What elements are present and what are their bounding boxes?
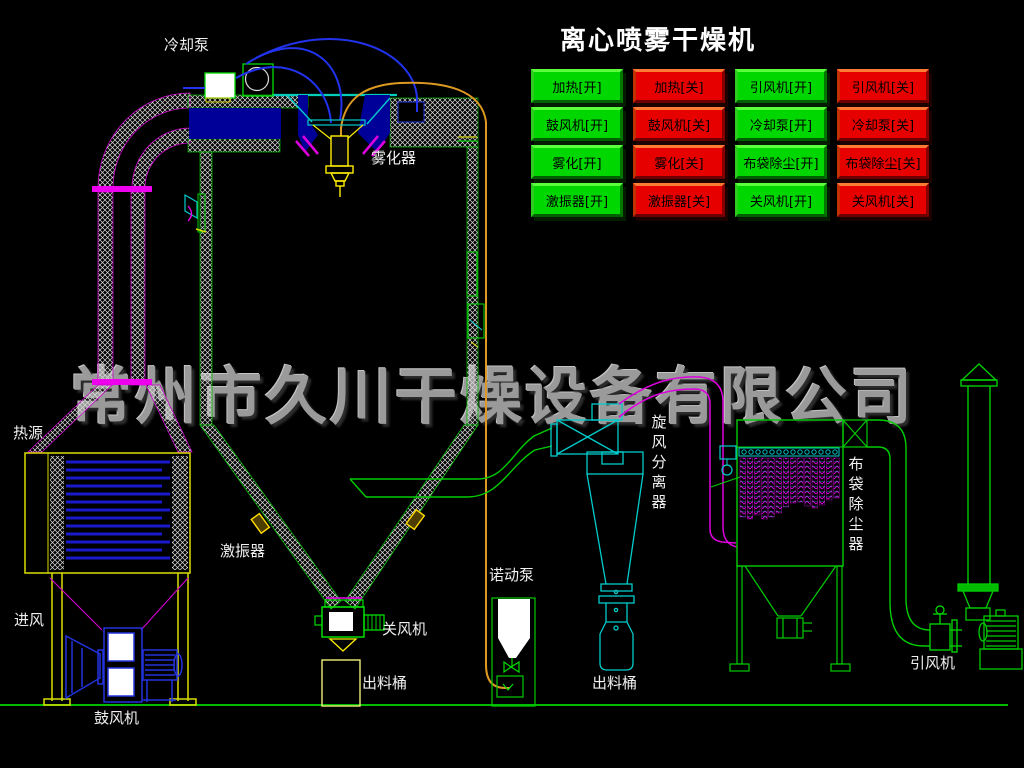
label-cyclone: 旋风分离器 xyxy=(650,414,667,514)
feed-tank xyxy=(492,598,535,706)
btn-heating-on[interactable]: 加热[开] xyxy=(531,69,623,103)
btn-rotary-valve-on[interactable]: 关风机[开] xyxy=(735,183,827,217)
blower xyxy=(66,628,182,702)
label-bag-filter: 布袋除尘器 xyxy=(847,456,864,556)
label-cooling-pump: 冷却泵 xyxy=(164,37,209,54)
label-heat-source: 热源 xyxy=(13,425,43,442)
label-discharge-left: 出料桶 xyxy=(362,675,407,692)
btn-induced-fan-off[interactable]: 引风机[关] xyxy=(837,69,929,103)
riser-duct xyxy=(867,420,962,652)
btn-induced-fan-on[interactable]: 引风机[开] xyxy=(735,69,827,103)
label-vibrator: 激振器 xyxy=(220,543,265,560)
filter-bags xyxy=(740,458,839,519)
cyclone-separator xyxy=(551,404,643,670)
label-blower: 鼓风机 xyxy=(94,710,139,727)
btn-vibrator-on[interactable]: 激振器[开] xyxy=(531,183,623,217)
control-panel: 加热[开] 加热[关] 引风机[开] 引风机[关] 鼓风机[开] 鼓风机[关] … xyxy=(531,69,929,217)
exhaust-stack xyxy=(961,364,997,584)
btn-cooling-pump-on[interactable]: 冷却泵[开] xyxy=(735,107,827,141)
label-atomizer: 雾化器 xyxy=(371,150,416,167)
btn-heating-off[interactable]: 加热[关] xyxy=(633,69,725,103)
btn-atomize-on[interactable]: 雾化[开] xyxy=(531,145,623,179)
label-rotary-valve: 关风机 xyxy=(382,621,427,638)
rotary-valve xyxy=(315,598,384,651)
label-air-inlet: 进风 xyxy=(14,612,44,629)
discharge-barrel-left xyxy=(322,660,360,706)
heater xyxy=(25,453,196,705)
btn-blower-off[interactable]: 鼓风机[关] xyxy=(633,107,725,141)
drying-tower xyxy=(200,137,478,609)
page-title: 离心喷雾干燥机 xyxy=(560,20,756,57)
hot-air-pipe xyxy=(28,93,192,452)
btn-rotary-valve-off[interactable]: 关风机[关] xyxy=(837,183,929,217)
label-peristaltic-pump: 诺动泵 xyxy=(489,567,534,584)
btn-atomize-off[interactable]: 雾化[关] xyxy=(633,145,725,179)
induced-draft-fan xyxy=(958,584,1022,669)
btn-vibrator-off[interactable]: 激振器[关] xyxy=(633,183,725,217)
scada-screen: 常州市久川干燥设备有限公司 xyxy=(0,0,1024,768)
btn-bag-filter-off[interactable]: 布袋除尘[关] xyxy=(837,145,929,179)
label-discharge-right: 出料桶 xyxy=(592,675,637,692)
btn-blower-on[interactable]: 鼓风机[开] xyxy=(531,107,623,141)
btn-cooling-pump-off[interactable]: 冷却泵[关] xyxy=(837,107,929,141)
btn-bag-filter-on[interactable]: 布袋除尘[开] xyxy=(735,145,827,179)
label-induced-fan: 引风机 xyxy=(910,655,955,672)
